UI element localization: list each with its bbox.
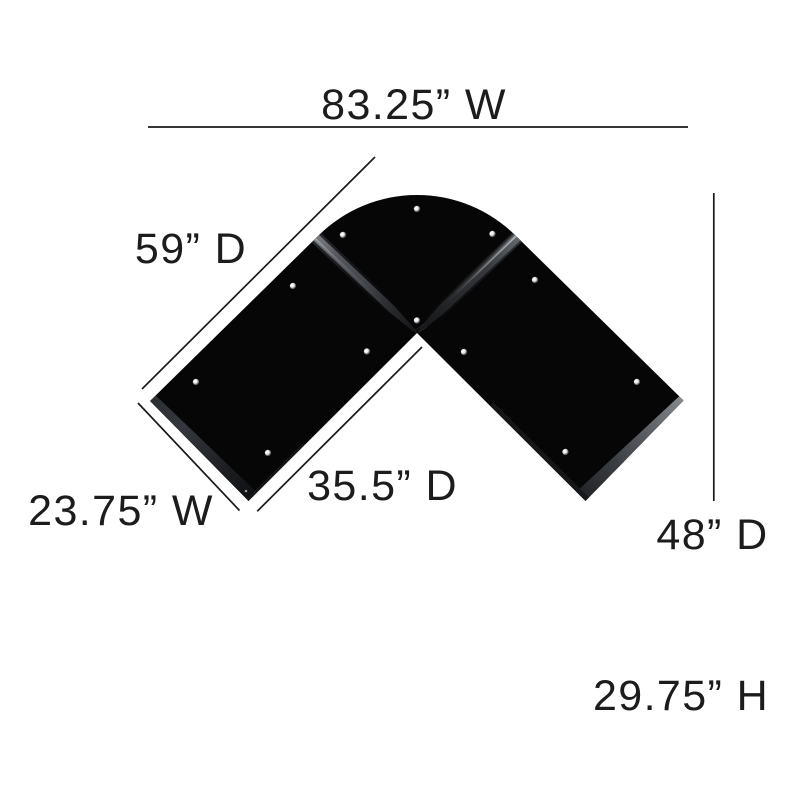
svg-text:29.75” H: 29.75” H	[593, 672, 769, 720]
svg-text:59” D: 59” D	[135, 225, 247, 273]
svg-text:48” D: 48” D	[656, 511, 768, 559]
svg-text:83.25” W: 83.25” W	[321, 81, 507, 129]
svg-text:35.5” D: 35.5” D	[307, 462, 458, 510]
svg-text:23.75” W: 23.75” W	[28, 487, 214, 535]
